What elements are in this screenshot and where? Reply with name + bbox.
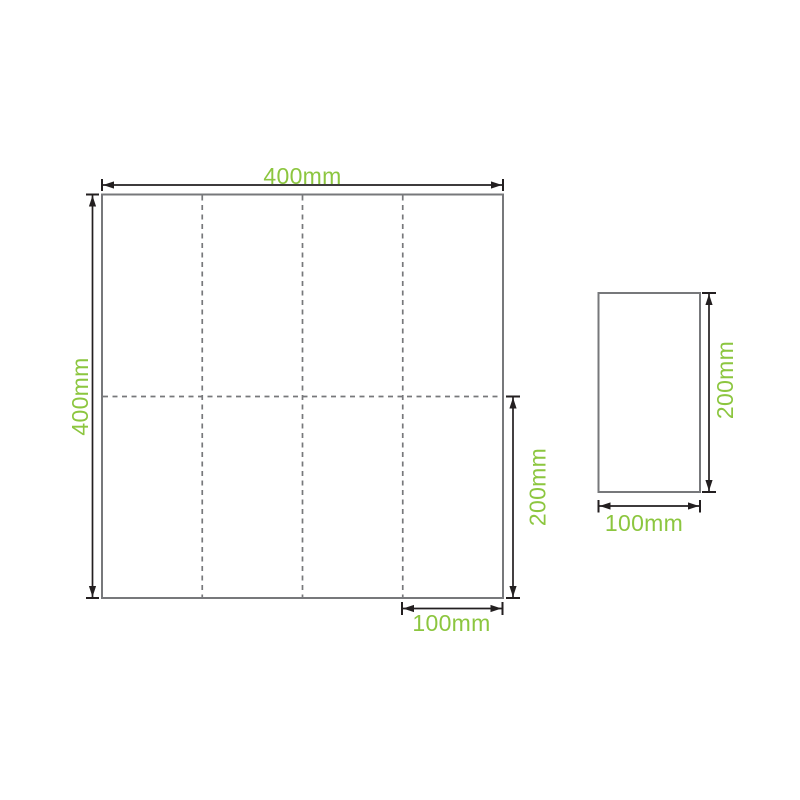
- arrow-right-icon: [491, 605, 502, 612]
- folded-napkin-outline: [599, 293, 701, 492]
- dim-label-unfolded-panel-width: 100mm: [412, 610, 490, 636]
- napkin-dimension-diagram: 400mm 400mm 200mm 100mm: [0, 0, 800, 800]
- dim-label-unfolded-height: 400mm: [67, 357, 93, 435]
- arrow-up-icon: [705, 294, 712, 305]
- arrow-up-icon: [509, 398, 516, 409]
- dim-label-folded-width: 100mm: [605, 510, 683, 536]
- dim-unfolded-width: 400mm: [102, 163, 503, 191]
- arrow-down-icon: [89, 586, 96, 597]
- dim-unfolded-panel-width: 100mm: [402, 602, 503, 636]
- arrow-down-icon: [509, 586, 516, 597]
- unfolded-napkin: [102, 195, 503, 599]
- dim-folded-width: 100mm: [599, 500, 701, 536]
- dim-label-unfolded-width: 400mm: [263, 163, 341, 189]
- arrow-up-icon: [89, 196, 96, 207]
- dim-folded-height: 200mm: [702, 293, 738, 492]
- dim-unfolded-half-height: 200mm: [506, 397, 551, 599]
- arrow-right-icon: [491, 181, 502, 188]
- dim-unfolded-height: 400mm: [67, 195, 99, 599]
- diagram-svg: 400mm 400mm 200mm 100mm: [0, 0, 800, 800]
- arrow-down-icon: [705, 480, 712, 491]
- dim-label-unfolded-half-height: 200mm: [525, 448, 551, 526]
- dim-label-folded-height: 200mm: [712, 341, 738, 419]
- arrow-left-icon: [600, 502, 611, 509]
- folded-napkin: [599, 293, 701, 492]
- arrow-left-icon: [103, 181, 114, 188]
- arrow-right-icon: [688, 502, 699, 509]
